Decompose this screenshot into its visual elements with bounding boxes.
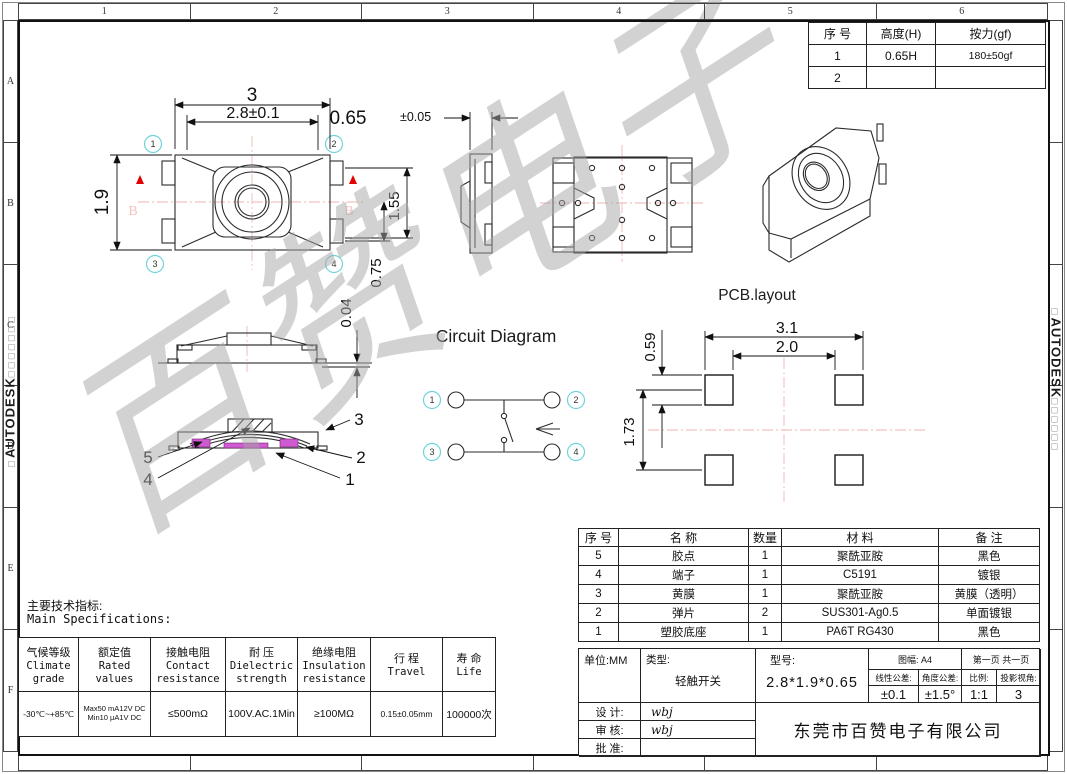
circuit-pin-1: 1 [429,395,434,405]
part-label-5: 5 [143,448,152,467]
dim-body-width: 2.8±0.1 [226,105,279,122]
angle-tol-label: 角度公差: [919,670,962,686]
type-value: 轻触开关 [641,673,755,689]
circuit-pin-2: 2 [573,395,578,405]
dim-upper-right: 1.55 [386,191,403,220]
autodesk-stamp-left: □AUTODESK□□□□□□□ [3,176,18,606]
pcb-title: PCB.layout [718,287,796,304]
type-cell: 类型: 轻触开关 [641,649,756,703]
bom-table: 序 号名 称数量 材 料备 注 5胶点1 聚酰亚胺黑色 4端子1 C5191镀银… [578,528,1040,642]
pin-3-bubble: 3 [152,259,157,269]
border-zone-columns-top: 1 2 3 4 5 6 [18,3,1048,20]
circuit-title: Circuit Diagram [436,326,557,346]
zone-col: 6 [877,3,1049,20]
bom-row: 5胶点1 聚酰亚胺黑色 [579,547,1040,566]
autodesk-stamp-right: □AUTODESK□□□□□□ [1049,146,1064,616]
spec-header-row: 气候等级Climate grade 额定值Rated values 接触电阻Co… [19,638,496,692]
section-label-right: B [344,204,353,219]
pin-1-bubble: 1 [150,139,155,149]
zone-col: 1 [18,3,191,20]
zone-col [18,754,191,771]
zone-col: 3 [362,3,534,20]
scale-value: 1:1 [962,686,997,703]
force-row: 2 [809,67,1046,89]
part-label-1: 1 [345,470,354,489]
sheet-size-cell: 图幅: A4 [869,649,962,670]
company-name: 东莞市百赞电子有限公司 [756,703,1041,757]
zone-row: A [3,20,18,143]
spec-title-en: Main Specifications: [27,612,172,626]
linear-tol-value: ±0.1 [869,686,919,703]
part-label-4: 4 [143,470,152,489]
scale-label: 比例: [962,670,997,686]
model-label: 型号: [756,649,868,668]
angle-tol-value: ±1.5° [919,686,962,703]
projection-label: 投影视角: [997,670,1041,686]
profile-view: 0.04 [158,298,372,398]
bom-row: 2弹片2 SUS301-Ag0.5单面镀银 [579,604,1040,623]
zone-row [1048,20,1063,143]
audit-label: 审 核: [579,721,641,739]
type-label: 类型: [641,649,755,667]
pin-4-bubble: 4 [331,259,336,269]
dim-height: 1.9 [92,189,113,215]
model-value: 2.8*1.9*0.65 [756,675,868,691]
unit-cell: 单位:MM [579,649,641,703]
zone-row [1048,630,1063,752]
autodesk-logo-text: AUTODESK [1049,318,1064,399]
dim-pcb-outer: 3.1 [776,320,798,337]
title-block: 单位:MM 类型: 轻触开关 型号: 2.8*1.9*0.65 图幅: A4 第… [578,648,1040,756]
force-header-height: 高度(H) [867,23,936,45]
section-arrow-left [136,175,144,184]
dim-pcb-inner: 2.0 [776,339,798,356]
dim-pcb-pitch: 1.73 [621,417,638,446]
part-label-3: 3 [354,410,363,429]
bom-row: 4端子1 C5191镀银 [579,566,1040,585]
dim-gap: 0.04 [338,298,355,327]
dim-thickness-tol: ±0.05 [400,110,431,124]
dim-total-width: 3 [247,85,258,106]
linear-tol-label: 线性公差: [869,670,919,686]
zone-col [191,754,363,771]
stamp-boxes: □□□□□□ [1049,398,1060,452]
zone-col: 5 [705,3,877,20]
projection-value: 3 [997,686,1041,703]
part-label-2: 2 [356,448,365,467]
main-spec-table: 气候等级Climate grade 额定值Rated values 接触电阻Co… [18,637,496,737]
spec-value-row: -30℃~+85℃ Max50 mA12V DC Min10 μA1V DC ≤… [19,692,496,737]
design-label: 设 计: [579,703,641,721]
force-header-force: 按力(gf) [936,23,1046,45]
approve-label: 批 准: [579,739,641,757]
force-header-no: 序 号 [809,23,867,45]
iso-view [763,124,886,262]
drawing-sheet: 1 2 3 4 B B 3 2.8±0.1 1.9 [0,0,1067,774]
stamp-boxes: □ [7,458,18,467]
zone-col: 2 [191,3,363,20]
design-signature: wbj [641,703,756,721]
stamp-boxes: □ [1049,308,1060,317]
side-view: 0.65 ±0.05 [330,108,518,253]
pin-2-bubble: 2 [331,139,336,149]
pcb-layout: PCB.layout 3.1 2.0 0.59 1.73 [621,287,925,502]
page-cell: 第一页 共一页 [962,649,1041,670]
circuit-pin-4: 4 [573,447,578,457]
stamp-boxes: □□□□□□□ [7,314,18,377]
section-label-left: B [128,204,137,219]
circuit-diagram: Circuit Diagram 1 2 3 4 [424,326,585,461]
section-view: 3 2 1 5 4 [143,410,365,489]
bom-row: 3黄膜1 聚酰亚胺黄膜（透明） [579,585,1040,604]
force-row: 1 0.65H 180±50gf [809,45,1046,67]
zone-col [362,754,534,771]
audit-signature: wbj [641,721,756,739]
model-cell: 型号: 2.8*1.9*0.65 [756,649,869,703]
bom-header-row: 序 号名 称数量 材 料备 注 [579,529,1040,547]
zone-row: F [3,630,18,752]
dim-thickness: 0.65 [330,108,367,129]
bom-row: 1塑胶底座1 PA6T RG430黑色 [579,623,1040,642]
force-table: 序 号 高度(H) 按力(gf) 1 0.65H 180±50gf 2 [808,22,1046,89]
zone-col: 4 [534,3,706,20]
section-arrow-right [349,175,357,184]
dim-pcb-pad-height: 0.59 [642,332,659,361]
bottom-view [540,145,705,262]
circuit-pin-3: 3 [429,447,434,457]
autodesk-logo-text: AUTODESK [3,377,18,458]
dim-lower-right: 0.75 [368,258,385,287]
approve-signature [641,739,756,757]
